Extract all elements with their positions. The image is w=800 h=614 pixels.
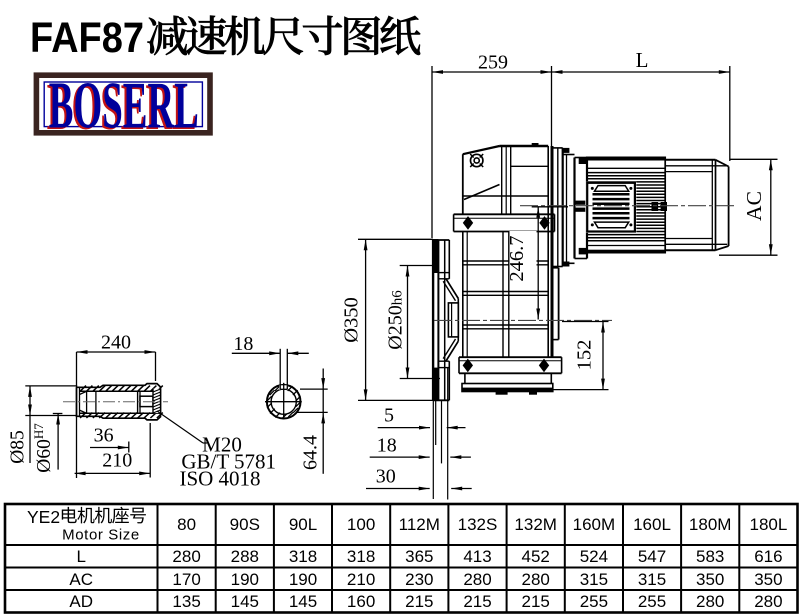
- svg-text:Motor Size: Motor Size: [62, 527, 140, 544]
- svg-text:350: 350: [754, 570, 782, 589]
- svg-text:Ø250h6: Ø250h6: [385, 290, 407, 350]
- svg-text:452: 452: [522, 547, 550, 566]
- svg-text:5: 5: [384, 404, 394, 426]
- svg-text:288: 288: [231, 547, 259, 566]
- svg-text:246.7: 246.7: [506, 235, 528, 281]
- svg-text:170: 170: [172, 570, 200, 589]
- svg-text:180L: 180L: [749, 515, 787, 534]
- svg-text:64.4: 64.4: [300, 435, 322, 470]
- svg-text:230: 230: [405, 570, 433, 589]
- svg-text:90L: 90L: [289, 515, 317, 534]
- svg-text:315: 315: [580, 570, 608, 589]
- svg-text:L: L: [636, 48, 649, 72]
- svg-text:30: 30: [376, 466, 396, 488]
- svg-text:AC: AC: [742, 191, 766, 221]
- svg-text:280: 280: [754, 592, 782, 611]
- svg-text:215: 215: [405, 592, 433, 611]
- svg-text:Ø85: Ø85: [8, 430, 29, 464]
- svg-text:90S: 90S: [230, 515, 260, 534]
- svg-text:215: 215: [522, 592, 550, 611]
- svg-text:FAF87: FAF87: [30, 14, 144, 62]
- svg-text:132M: 132M: [514, 515, 557, 534]
- svg-text:524: 524: [580, 547, 608, 566]
- svg-text:160: 160: [347, 592, 375, 611]
- svg-text:180M: 180M: [689, 515, 732, 534]
- svg-text:413: 413: [463, 547, 491, 566]
- svg-text:616: 616: [754, 547, 782, 566]
- svg-text:280: 280: [172, 547, 200, 566]
- svg-text:ISO 4018: ISO 4018: [179, 467, 260, 491]
- svg-text:18: 18: [377, 434, 397, 456]
- svg-text:350: 350: [696, 570, 724, 589]
- svg-text:145: 145: [289, 592, 317, 611]
- svg-text:365: 365: [405, 547, 433, 566]
- svg-text:280: 280: [463, 570, 491, 589]
- svg-text:318: 318: [289, 547, 317, 566]
- svg-text:315: 315: [638, 570, 666, 589]
- svg-text:259: 259: [478, 52, 508, 74]
- svg-text:100: 100: [347, 515, 375, 534]
- svg-text:190: 190: [289, 570, 317, 589]
- svg-text:135: 135: [172, 592, 200, 611]
- svg-text:Ø350: Ø350: [341, 297, 363, 343]
- svg-text:280: 280: [696, 592, 724, 611]
- svg-text:AD: AD: [69, 592, 93, 611]
- svg-text:80: 80: [177, 515, 196, 534]
- svg-text:255: 255: [580, 592, 608, 611]
- svg-text:145: 145: [231, 592, 259, 611]
- svg-text:215: 215: [463, 592, 491, 611]
- svg-text:190: 190: [231, 570, 259, 589]
- svg-text:255: 255: [638, 592, 666, 611]
- svg-text:L: L: [76, 547, 85, 566]
- svg-text:160L: 160L: [633, 515, 671, 534]
- svg-text:112M: 112M: [399, 515, 440, 534]
- svg-text:BOSERL: BOSERL: [49, 68, 199, 142]
- svg-text:132S: 132S: [458, 515, 498, 534]
- svg-text:YE2: YE2: [27, 507, 60, 527]
- svg-text:Ø60H7: Ø60H7: [31, 423, 55, 473]
- svg-text:210: 210: [102, 450, 132, 472]
- svg-text:280: 280: [522, 570, 550, 589]
- svg-text:583: 583: [696, 547, 724, 566]
- svg-text:AC: AC: [69, 570, 93, 589]
- svg-text:152: 152: [574, 340, 596, 371]
- svg-text:18: 18: [233, 333, 253, 355]
- svg-text:36: 36: [94, 425, 114, 447]
- svg-text:210: 210: [347, 570, 375, 589]
- svg-text:240: 240: [101, 331, 131, 353]
- svg-text:547: 547: [638, 547, 666, 566]
- svg-text:318: 318: [347, 547, 375, 566]
- svg-text:160M: 160M: [573, 515, 616, 534]
